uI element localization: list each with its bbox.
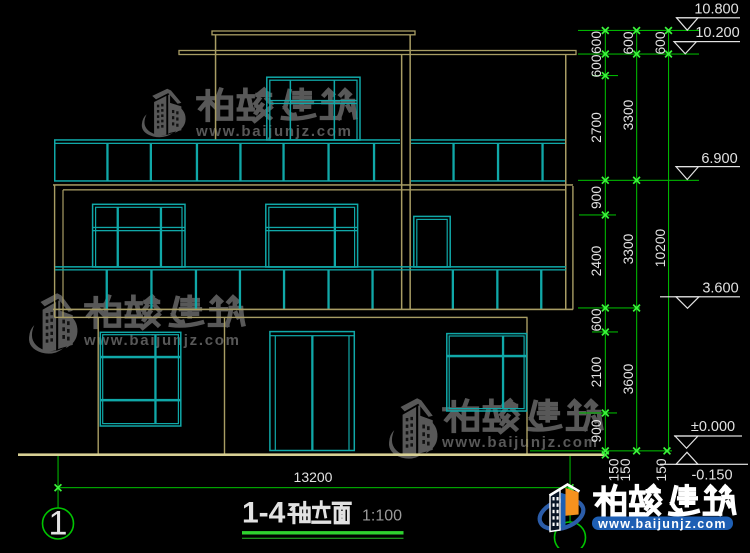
svg-text:1:100: 1:100 xyxy=(362,508,402,525)
svg-text:150: 150 xyxy=(618,458,633,481)
svg-text:-0.150: -0.150 xyxy=(691,468,732,484)
svg-text:1: 1 xyxy=(49,505,68,543)
svg-text:www.baijunjz.com: www.baijunjz.com xyxy=(195,123,353,140)
svg-text:3300: 3300 xyxy=(621,233,636,264)
svg-text:1-4: 1-4 xyxy=(242,497,286,530)
svg-text:900: 900 xyxy=(589,419,604,442)
svg-text:±0.000: ±0.000 xyxy=(691,419,735,435)
svg-text:13200: 13200 xyxy=(294,469,333,485)
svg-text:600: 600 xyxy=(589,308,604,331)
svg-text:2700: 2700 xyxy=(589,112,604,143)
svg-text:2400: 2400 xyxy=(589,245,604,276)
svg-text:3600: 3600 xyxy=(621,363,636,394)
svg-text:3.600: 3.600 xyxy=(702,281,738,297)
svg-text:900: 900 xyxy=(589,186,604,209)
svg-text:www.baijunjz.com: www.baijunjz.com xyxy=(597,517,727,531)
svg-text:3300: 3300 xyxy=(621,99,636,130)
svg-text:600: 600 xyxy=(589,54,604,77)
svg-text:2100: 2100 xyxy=(589,356,604,387)
svg-text:600: 600 xyxy=(621,31,636,54)
svg-text:10200: 10200 xyxy=(653,228,668,267)
svg-text:10.200: 10.200 xyxy=(695,25,739,41)
svg-text:www.baijunjz.com: www.baijunjz.com xyxy=(441,434,599,451)
svg-text:600: 600 xyxy=(589,31,604,54)
svg-text:10.800: 10.800 xyxy=(694,2,738,18)
svg-text:150: 150 xyxy=(654,458,669,481)
svg-text:6.900: 6.900 xyxy=(701,151,737,167)
svg-text:600: 600 xyxy=(653,31,668,54)
